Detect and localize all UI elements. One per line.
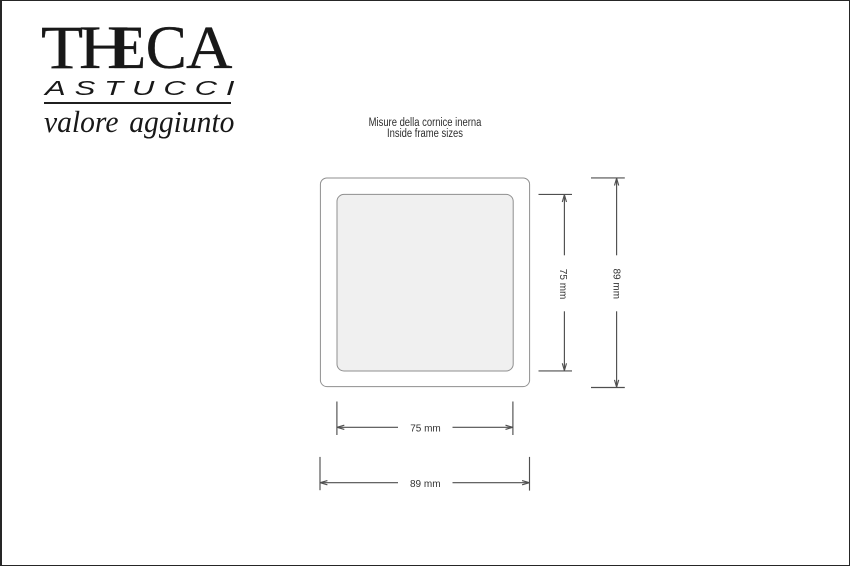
svg-text:89 mm: 89 mm — [410, 479, 441, 490]
svg-text:75 mm: 75 mm — [410, 424, 441, 435]
svg-text:89 mm: 89 mm — [611, 269, 622, 300]
svg-text:75 mm: 75 mm — [557, 269, 568, 300]
